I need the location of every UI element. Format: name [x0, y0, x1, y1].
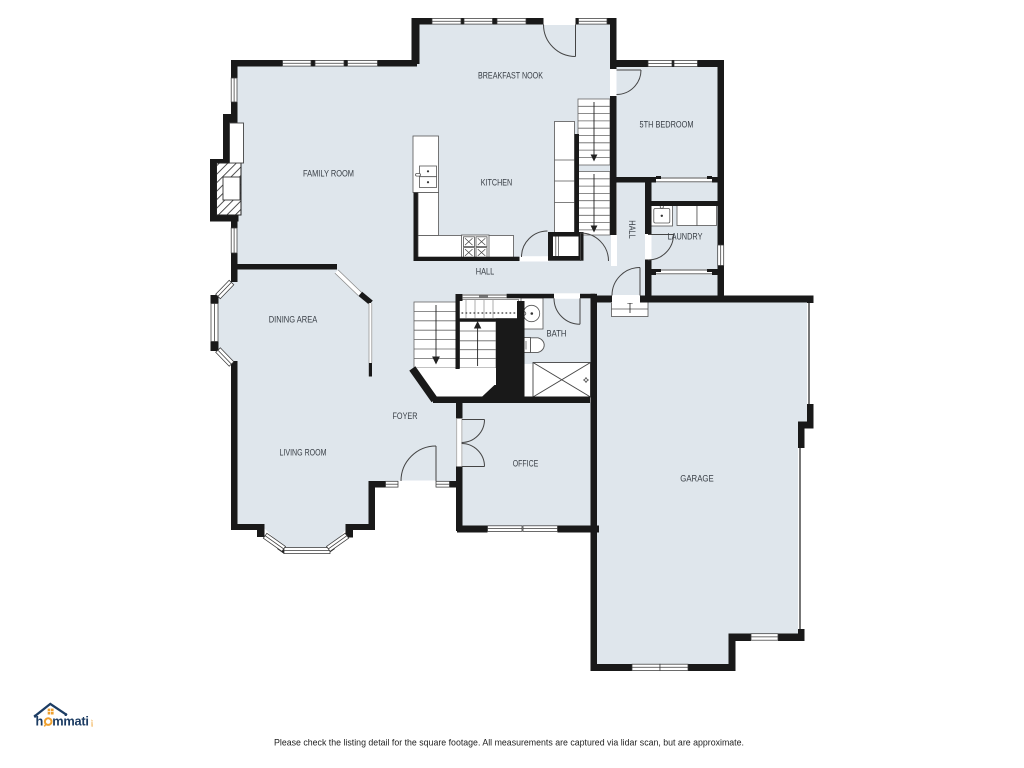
- svg-text:.com: .com: [90, 719, 94, 727]
- svg-text:DINING AREA: DINING AREA: [269, 315, 318, 325]
- svg-text:KITCHEN: KITCHEN: [481, 178, 513, 188]
- svg-text:HALL: HALL: [627, 220, 637, 239]
- svg-text:BREAKFAST NOOK: BREAKFAST NOOK: [478, 71, 543, 81]
- svg-text:BATH: BATH: [547, 329, 567, 339]
- svg-text:LAUNDRY: LAUNDRY: [668, 232, 703, 242]
- svg-text:h: h: [36, 714, 44, 729]
- svg-text:Please check the listing detai: Please check the listing detail for the …: [274, 738, 744, 748]
- svg-text:HALL: HALL: [476, 267, 495, 277]
- svg-text:mmati: mmati: [52, 714, 88, 729]
- svg-text:OFFICE: OFFICE: [513, 459, 539, 469]
- svg-text:5TH BEDROOM: 5TH BEDROOM: [640, 120, 694, 130]
- svg-text:LIVING ROOM: LIVING ROOM: [280, 448, 327, 458]
- svg-text:GARAGE: GARAGE: [680, 474, 714, 484]
- svg-text:FOYER: FOYER: [393, 411, 418, 421]
- svg-text:FAMILY ROOM: FAMILY ROOM: [303, 169, 354, 179]
